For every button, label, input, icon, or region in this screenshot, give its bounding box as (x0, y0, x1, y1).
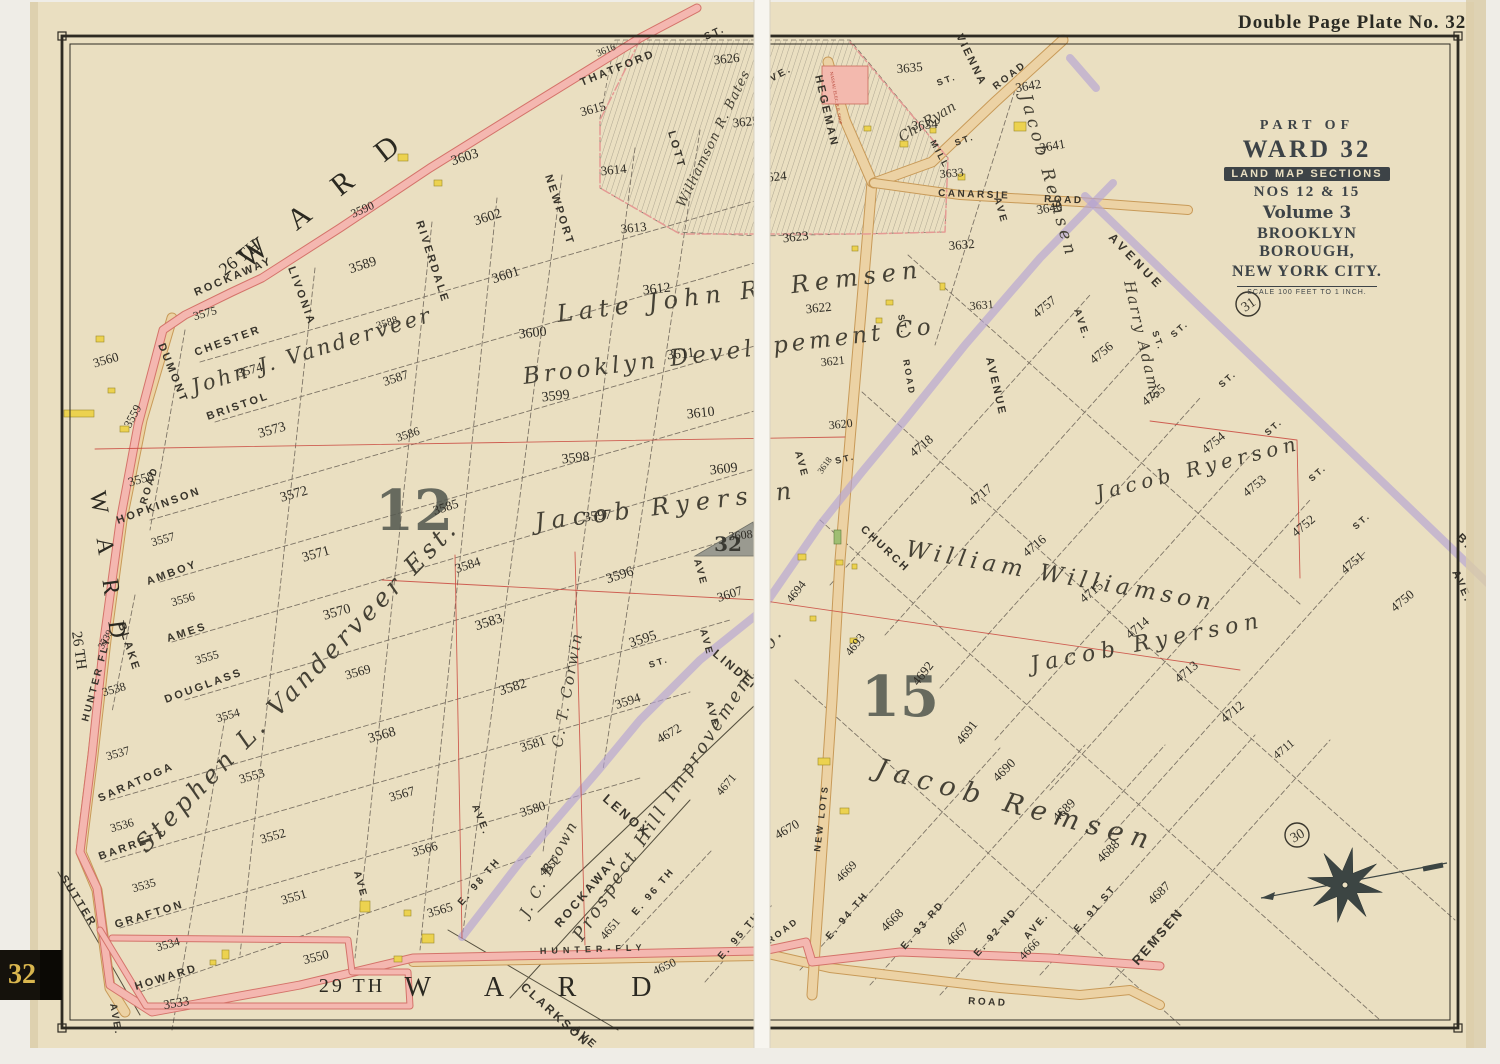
page-number: 32 (0, 959, 36, 991)
building-green (834, 530, 841, 544)
building (840, 808, 849, 814)
title-scale: SCALE 100 FEET TO 1 INCH. (1237, 286, 1377, 296)
building (96, 336, 104, 342)
building (434, 180, 442, 186)
building (404, 910, 411, 916)
title-sections: NOS 12 & 15 (1212, 184, 1402, 201)
left-page-edge (30, 2, 38, 1048)
building (108, 388, 115, 393)
building (810, 616, 816, 621)
block-number: 3621 (820, 353, 845, 369)
block-number: 3610 (686, 405, 715, 423)
block-number: 3598 (561, 450, 590, 468)
building (836, 560, 843, 565)
map-title-block: PART OF WARD 32 LAND MAP SECTIONS NOS 12… (1212, 118, 1402, 296)
block-number: 3623 (782, 228, 809, 246)
title-volume: Volume 3 (1212, 203, 1402, 223)
block-number: 3635 (896, 59, 923, 76)
block-number: 3609 (709, 461, 738, 479)
block-number: 3633 (939, 165, 964, 181)
building (886, 300, 893, 305)
title-borough: BROOKLYN BOROUGH, (1212, 225, 1402, 261)
page-number-tab: 32 (0, 950, 62, 1000)
block-number: 3632 (948, 236, 975, 253)
building (64, 410, 94, 417)
building (394, 956, 402, 962)
block-number: 3631 (969, 297, 994, 313)
ward-label: 29 TH (319, 975, 385, 997)
block-number: 3626 (713, 50, 741, 68)
block-number: 3620 (828, 416, 853, 432)
building (360, 901, 370, 912)
block-number: 3612 (642, 281, 671, 299)
building (798, 554, 806, 560)
block-number: 3600 (518, 325, 547, 343)
building (422, 934, 434, 943)
title-city: NEW YORK CITY. (1212, 263, 1402, 281)
building (210, 960, 216, 965)
building (864, 126, 871, 131)
block-number: 3599 (541, 388, 570, 406)
building (222, 950, 229, 959)
building (852, 246, 858, 251)
plate-title: Double Page Plate No. 32 (1238, 12, 1466, 34)
block-number: 3611 (666, 346, 695, 364)
title-banner: LAND MAP SECTIONS (1224, 167, 1390, 181)
ward-label: W A R D (405, 972, 676, 1003)
block-number: 3608 (728, 527, 753, 543)
atlas-page: NASSAU ELEC. R.R. SHOP32THATFORDST.ROCKA… (0, 0, 1500, 1064)
building (818, 758, 830, 765)
block-number: 3597 (583, 508, 612, 526)
building (940, 283, 945, 290)
block-number: 3613 (620, 219, 647, 237)
block-number: 3614 (600, 161, 628, 179)
page-seam (754, 0, 770, 1064)
right-page-edge (1466, 0, 1486, 1064)
title-part-of: PART OF (1212, 118, 1402, 134)
building (852, 564, 857, 569)
street-label: ROAD (968, 996, 1008, 1009)
title-ward: WARD 32 (1212, 136, 1402, 164)
block-number: 3634 (911, 116, 939, 133)
block-number: 3622 (805, 299, 832, 317)
